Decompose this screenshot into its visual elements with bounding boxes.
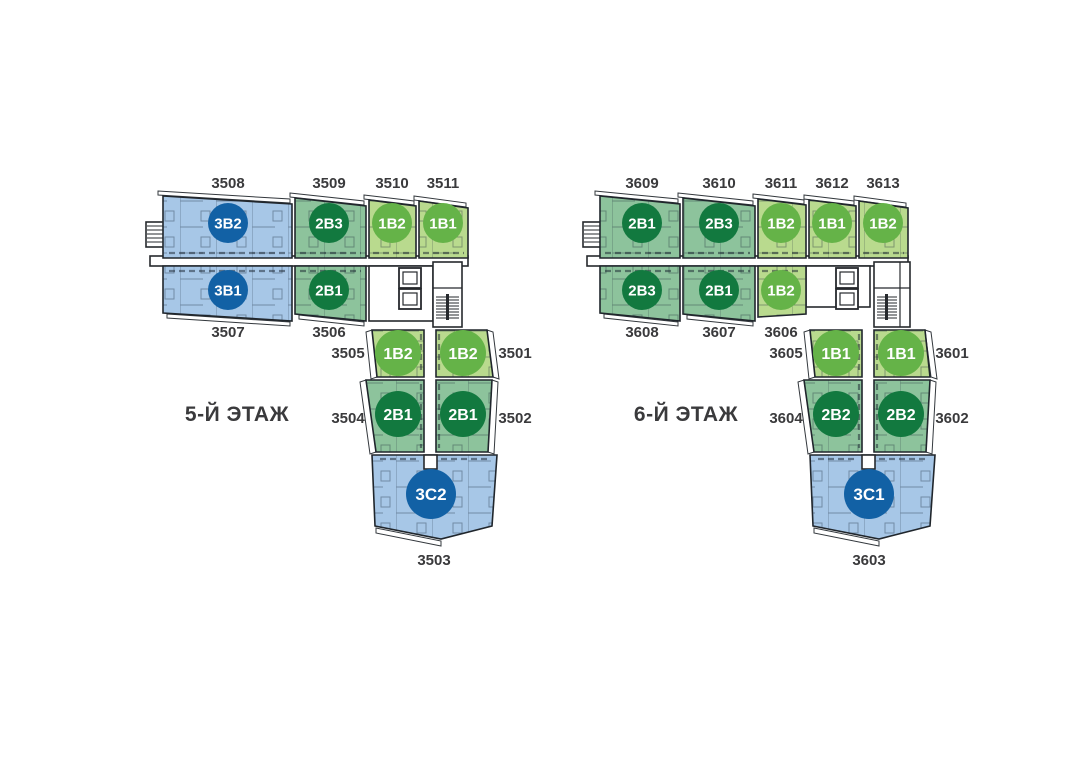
unit-type-badge-3501[interactable]: 1B2 — [440, 330, 486, 376]
unit-number-3510: 3510 — [375, 175, 408, 192]
unit-type-label: 1B2 — [869, 216, 897, 233]
unit-number-3606: 3606 — [764, 324, 797, 341]
unit-type-label: 3B2 — [214, 216, 242, 233]
unit-number-3609: 3609 — [625, 175, 658, 192]
unit-type-badge-3603[interactable]: 3C1 — [844, 469, 894, 519]
unit-number-3608: 3608 — [625, 324, 658, 341]
unit-number-3509: 3509 — [312, 175, 345, 192]
unit-type-label: 2B3 — [315, 216, 343, 233]
unit-type-badge-3503[interactable]: 3C2 — [406, 469, 456, 519]
exterior-stair-icon — [583, 222, 601, 247]
unit-type-badge-3610[interactable]: 2B3 — [699, 203, 739, 243]
unit-number-3508: 3508 — [211, 175, 244, 192]
unit-type-label: 3C2 — [415, 485, 446, 504]
floor-label-5: 5-Й ЭТАЖ — [185, 402, 290, 426]
unit-type-label: 3B1 — [214, 283, 242, 300]
unit-type-badge-3507[interactable]: 3B1 — [208, 270, 248, 310]
unit-type-badge-3606[interactable]: 1B2 — [761, 270, 801, 310]
unit-number-3511: 3511 — [427, 175, 460, 192]
unit-type-label: 1B1 — [818, 216, 846, 233]
exterior-stair-icon — [146, 222, 164, 247]
floor-plans-canvas: 3B2 2B3 1B2 1B1 3B1 2B1 1B2 1B2 — [0, 0, 1081, 761]
unit-type-label: 1B1 — [886, 346, 915, 363]
unit-type-label: 2B3 — [628, 283, 656, 300]
unit-number-3501: 3501 — [498, 345, 531, 362]
unit-number-3507: 3507 — [211, 324, 244, 341]
unit-type-badge-3508[interactable]: 3B2 — [208, 203, 248, 243]
unit-type-label: 1B2 — [378, 216, 406, 233]
unit-type-badge-3511[interactable]: 1B1 — [423, 203, 463, 243]
staircase — [433, 262, 462, 327]
unit-type-label: 2B3 — [705, 216, 733, 233]
unit-type-badge-3506[interactable]: 2B1 — [309, 270, 349, 310]
floorplan-floor-6: 2B1 2B3 1B2 1B1 1B2 2B3 2B1 1B2 — [583, 175, 969, 569]
unit-type-badge-3505[interactable]: 1B2 — [375, 330, 421, 376]
unit-type-badge-3605[interactable]: 1B1 — [813, 330, 859, 376]
unit-type-badge-3611[interactable]: 1B2 — [761, 203, 801, 243]
unit-number-3611: 3611 — [765, 175, 798, 192]
unit-type-badge-3601[interactable]: 1B1 — [878, 330, 924, 376]
unit-type-label: 2B2 — [821, 407, 850, 424]
unit-number-3605: 3605 — [769, 345, 802, 362]
unit-type-label: 1B2 — [383, 346, 412, 363]
unit-type-badge-3607[interactable]: 2B1 — [699, 270, 739, 310]
unit-number-3504: 3504 — [331, 410, 365, 427]
corridor-notch — [424, 455, 437, 469]
unit-type-label: 2B1 — [628, 216, 656, 233]
unit-type-label: 2B2 — [886, 407, 915, 424]
unit-type-label: 1B1 — [429, 216, 457, 233]
unit-type-badge-3609[interactable]: 2B1 — [622, 203, 662, 243]
unit-number-3506: 3506 — [312, 324, 345, 341]
unit-type-badge-3613[interactable]: 1B2 — [863, 203, 903, 243]
floorplan-floor-5: 3B2 2B3 1B2 1B1 3B1 2B1 1B2 1B2 — [146, 175, 532, 569]
unit-type-label: 1B2 — [767, 216, 795, 233]
unit-type-label: 2B1 — [315, 283, 343, 300]
unit-type-badge-3604[interactable]: 2B2 — [813, 391, 859, 437]
unit-number-3604: 3604 — [769, 410, 803, 427]
unit-type-label: 1B2 — [448, 346, 477, 363]
floor-label-6: 6-Й ЭТАЖ — [634, 402, 739, 426]
unit-number-3503: 3503 — [417, 552, 450, 569]
unit-type-label: 2B1 — [705, 283, 733, 300]
corridor-notch — [862, 455, 875, 469]
staircase — [874, 262, 910, 327]
unit-number-3607: 3607 — [702, 324, 735, 341]
unit-type-badge-3612[interactable]: 1B1 — [812, 203, 852, 243]
unit-number-3502: 3502 — [498, 410, 531, 427]
unit-type-label: 3C1 — [853, 485, 884, 504]
unit-type-badge-3509[interactable]: 2B3 — [309, 203, 349, 243]
unit-type-label: 1B1 — [821, 346, 850, 363]
unit-type-badge-3502[interactable]: 2B1 — [440, 391, 486, 437]
elevator-shaft — [836, 268, 858, 309]
unit-number-3505: 3505 — [331, 345, 364, 362]
unit-type-badge-3608[interactable]: 2B3 — [622, 270, 662, 310]
unit-type-badge-3602[interactable]: 2B2 — [878, 391, 924, 437]
unit-type-label: 1B2 — [767, 283, 795, 300]
unit-type-label: 2B1 — [383, 407, 412, 424]
unit-number-3603: 3603 — [852, 552, 885, 569]
unit-number-3610: 3610 — [702, 175, 735, 192]
unit-type-label: 2B1 — [448, 407, 477, 424]
unit-number-3613: 3613 — [866, 175, 899, 192]
unit-number-3602: 3602 — [935, 410, 968, 427]
unit-type-badge-3510[interactable]: 1B2 — [372, 203, 412, 243]
floor-plans-page: 3B2 2B3 1B2 1B1 3B1 2B1 1B2 1B2 — [0, 0, 1081, 761]
unit-number-3601: 3601 — [935, 345, 968, 362]
unit-type-badge-3504[interactable]: 2B1 — [375, 391, 421, 437]
unit-number-3612: 3612 — [815, 175, 848, 192]
elevator-shaft — [399, 268, 421, 309]
